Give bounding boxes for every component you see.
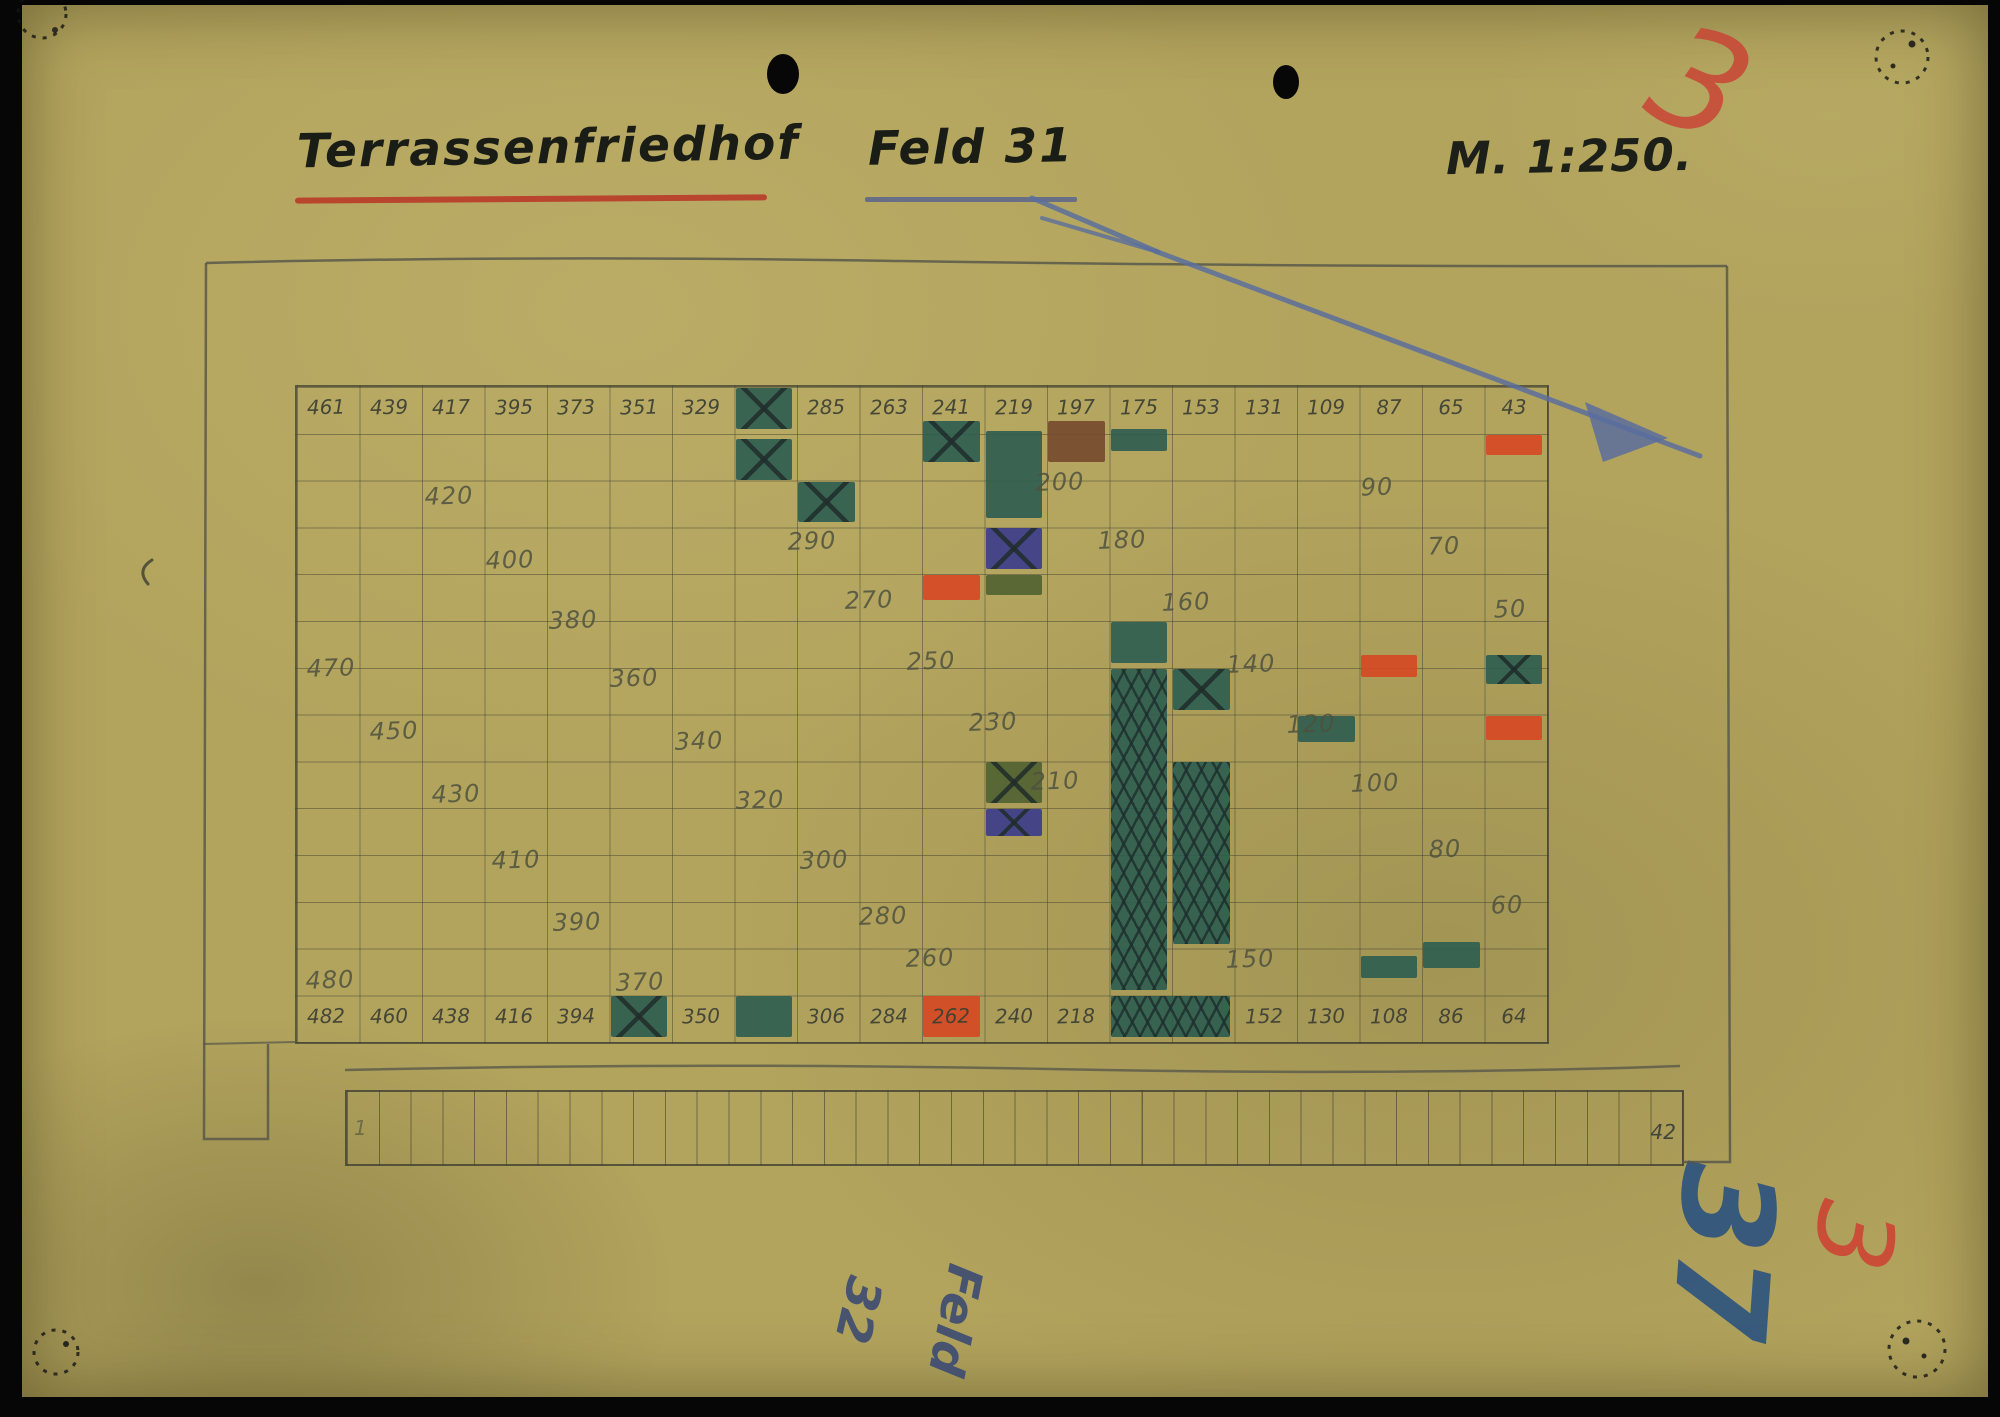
colored-grave-cell-blue — [986, 528, 1043, 569]
grave-number-interior: 70 — [1427, 531, 1461, 560]
blue-page-number-bottom: 37 — [1652, 1159, 1792, 1346]
grave-number-top: 241 — [932, 395, 971, 420]
grave-number-bottom: 240 — [994, 1004, 1033, 1029]
grave-number-top: 329 — [682, 395, 721, 420]
grave-number-bottom: 306 — [807, 1004, 846, 1029]
grave-number-interior: 450 — [369, 716, 419, 746]
colored-grave-cell-red — [923, 575, 980, 599]
grave-number-interior: 420 — [424, 481, 474, 511]
grave-number-top: 439 — [369, 395, 408, 420]
grave-number-top: 263 — [869, 395, 908, 420]
grave-number-interior: 50 — [1493, 594, 1527, 623]
colored-grave-cell-green — [736, 439, 793, 480]
grave-number-top: 351 — [619, 395, 658, 420]
grave-number-interior: 470 — [306, 653, 356, 683]
colored-grave-cell-green — [1111, 429, 1168, 451]
colored-grave-cell-brown — [1048, 421, 1105, 462]
page-title: Terrassenfriedhof — [297, 116, 801, 180]
grave-number-interior: 400 — [485, 545, 535, 575]
grave-number-interior: 180 — [1097, 525, 1147, 555]
colored-grave-cell-green — [923, 421, 980, 462]
scanned-cemetery-plan-page: Terrassenfriedhof Feld 31 M. 1:250. 3 1 … — [0, 0, 2000, 1417]
grave-number-bottom: 152 — [1244, 1004, 1283, 1029]
grave-number-interior: 260 — [905, 943, 955, 973]
field-label: Feld 31 — [868, 118, 1075, 177]
grave-number-interior: 280 — [858, 901, 908, 931]
grave-number-interior: 120 — [1286, 709, 1336, 739]
colored-grave-cell-blue — [986, 809, 1043, 836]
grave-number-interior: 340 — [674, 726, 724, 756]
grave-number-interior: 150 — [1225, 944, 1275, 974]
colored-grave-cell-green — [1173, 669, 1230, 710]
grave-strip-row: 1 42 — [345, 1090, 1684, 1166]
grave-number-bottom: 350 — [682, 1004, 721, 1029]
grave-number-interior: 360 — [609, 663, 659, 693]
grave-number-bottom: 284 — [869, 1004, 908, 1029]
grave-number-top: 175 — [1119, 395, 1158, 420]
grave-number-top: 87 — [1376, 395, 1402, 420]
grave-number-top: 373 — [557, 395, 596, 420]
colored-grave-cell-green — [1111, 669, 1168, 991]
grave-number-bottom: 460 — [369, 1004, 408, 1029]
adjacent-field-number: 32 — [827, 1272, 889, 1348]
grave-number-bottom: 130 — [1307, 1004, 1346, 1029]
colored-grave-cell-green — [1486, 655, 1543, 684]
grave-number-interior: 480 — [305, 965, 355, 995]
field-blue-underline — [865, 197, 1077, 202]
colored-grave-cell-red — [1486, 716, 1543, 740]
grave-number-bottom: 394 — [557, 1004, 596, 1029]
colored-grave-cell-red — [1361, 655, 1418, 677]
grave-number-bottom: 108 — [1369, 1004, 1408, 1029]
colored-grave-cell-green — [1111, 622, 1168, 663]
grave-number-top: 395 — [494, 395, 533, 420]
grave-number-top: 219 — [994, 395, 1033, 420]
grave-number-interior: 380 — [548, 605, 598, 635]
grave-number-interior: 160 — [1161, 587, 1211, 617]
grave-number-top: 131 — [1244, 395, 1283, 420]
grave-number-interior: 80 — [1428, 834, 1462, 863]
grave-number-top: 285 — [807, 395, 846, 420]
grave-number-interior: 320 — [735, 785, 785, 815]
grave-number-interior: 300 — [799, 845, 849, 875]
grave-number-interior: 370 — [615, 967, 665, 997]
grave-number-bottom: 64 — [1501, 1004, 1527, 1029]
colored-grave-cell-green — [1173, 762, 1230, 943]
colored-grave-cell-green — [798, 482, 855, 523]
grave-number-top: 197 — [1057, 395, 1096, 420]
grave-number-interior: 390 — [552, 907, 602, 937]
grave-number-bottom: 218 — [1057, 1004, 1096, 1029]
strip-last-number: 42 — [1651, 1120, 1676, 1144]
grave-number-bottom: 262 — [932, 1004, 971, 1029]
colored-grave-cell-red — [1486, 435, 1543, 455]
grave-number-interior: 210 — [1030, 766, 1080, 796]
grave-number-interior: 410 — [491, 845, 541, 875]
colored-grave-cell-green — [1423, 942, 1480, 969]
strip-first-number: 1 — [354, 1116, 367, 1140]
grave-number-interior: 270 — [844, 585, 894, 615]
colored-grave-cell-green — [1111, 996, 1230, 1037]
grave-number-top: 43 — [1501, 395, 1527, 420]
grave-number-top: 65 — [1438, 395, 1464, 420]
grave-number-top: 461 — [307, 395, 346, 420]
grave-number-interior: 140 — [1226, 649, 1276, 679]
grave-number-interior: 230 — [968, 707, 1018, 737]
grave-number-interior: 90 — [1360, 472, 1394, 501]
grave-number-interior: 60 — [1490, 890, 1524, 919]
grave-number-interior: 250 — [906, 646, 956, 676]
grave-number-top: 153 — [1182, 395, 1221, 420]
colored-grave-cell-green — [736, 996, 793, 1037]
grave-number-top: 109 — [1307, 395, 1346, 420]
grave-number-bottom: 416 — [494, 1004, 533, 1029]
grave-number-top: 417 — [432, 395, 471, 420]
colored-grave-cell-green — [611, 996, 668, 1037]
colored-grave-cell-green — [986, 431, 1043, 519]
grave-number-interior: 430 — [431, 779, 481, 809]
grave-number-interior: 100 — [1350, 768, 1400, 798]
grave-number-bottom: 482 — [307, 1004, 346, 1029]
grave-number-interior: 200 — [1035, 467, 1085, 497]
colored-grave-cell-green — [1361, 956, 1418, 978]
colored-grave-cell-green — [736, 388, 793, 429]
grave-number-bottom: 86 — [1438, 1004, 1464, 1029]
grave-number-bottom: 438 — [432, 1004, 471, 1029]
colored-grave-cell-olive — [986, 575, 1043, 595]
grave-number-interior: 290 — [787, 526, 837, 556]
